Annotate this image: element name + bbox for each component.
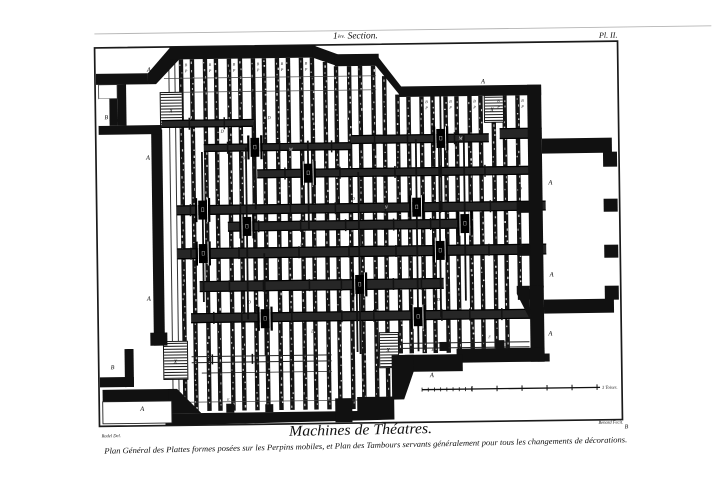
svg-text:A: A xyxy=(549,271,554,278)
svg-text:X: X xyxy=(489,107,494,113)
svg-text:P: P xyxy=(256,67,260,72)
svg-text:E: E xyxy=(226,397,230,402)
svg-text:3 Toises.: 3 Toises. xyxy=(602,385,618,390)
svg-text:Radel Del.: Radel Del. xyxy=(101,433,121,438)
svg-text:P: P xyxy=(280,67,284,72)
svg-text:P: P xyxy=(304,67,308,72)
svg-text:X: X xyxy=(168,108,173,114)
svg-text:P: P xyxy=(496,104,500,109)
svg-text:A: A xyxy=(146,67,151,74)
svg-text:Machines de Théatres.: Machines de Théatres. xyxy=(288,421,432,440)
svg-text:A: A xyxy=(146,296,151,303)
svg-text:A: A xyxy=(547,179,552,186)
svg-text:A: A xyxy=(145,155,150,162)
svg-text:Pl. II.: Pl. II. xyxy=(598,31,618,40)
svg-text:P: P xyxy=(520,104,524,109)
svg-text:P: P xyxy=(448,105,452,110)
svg-text:F: F xyxy=(487,334,491,339)
svg-text:A: A xyxy=(480,78,485,85)
svg-text:A: A xyxy=(139,406,144,413)
svg-text:Benard Fecit.: Benard Fecit. xyxy=(598,420,623,425)
svg-text:M: M xyxy=(458,136,463,141)
svg-text:B: B xyxy=(104,115,108,121)
svg-text:E: E xyxy=(430,347,434,352)
svg-text:F: F xyxy=(266,397,270,402)
svg-text:P: P xyxy=(232,68,236,73)
svg-text:P: P xyxy=(472,104,476,109)
svg-text:P: P xyxy=(184,68,188,73)
svg-text:A: A xyxy=(429,372,434,379)
svg-text:P: P xyxy=(208,68,212,73)
svg-text:P: P xyxy=(424,105,428,110)
svg-text:M: M xyxy=(288,147,293,152)
svg-text:X: X xyxy=(386,348,391,354)
svg-text:B: B xyxy=(111,365,115,371)
svg-text:X: X xyxy=(173,359,178,365)
svg-text:A: A xyxy=(547,330,552,337)
svg-text:B: B xyxy=(625,424,629,430)
